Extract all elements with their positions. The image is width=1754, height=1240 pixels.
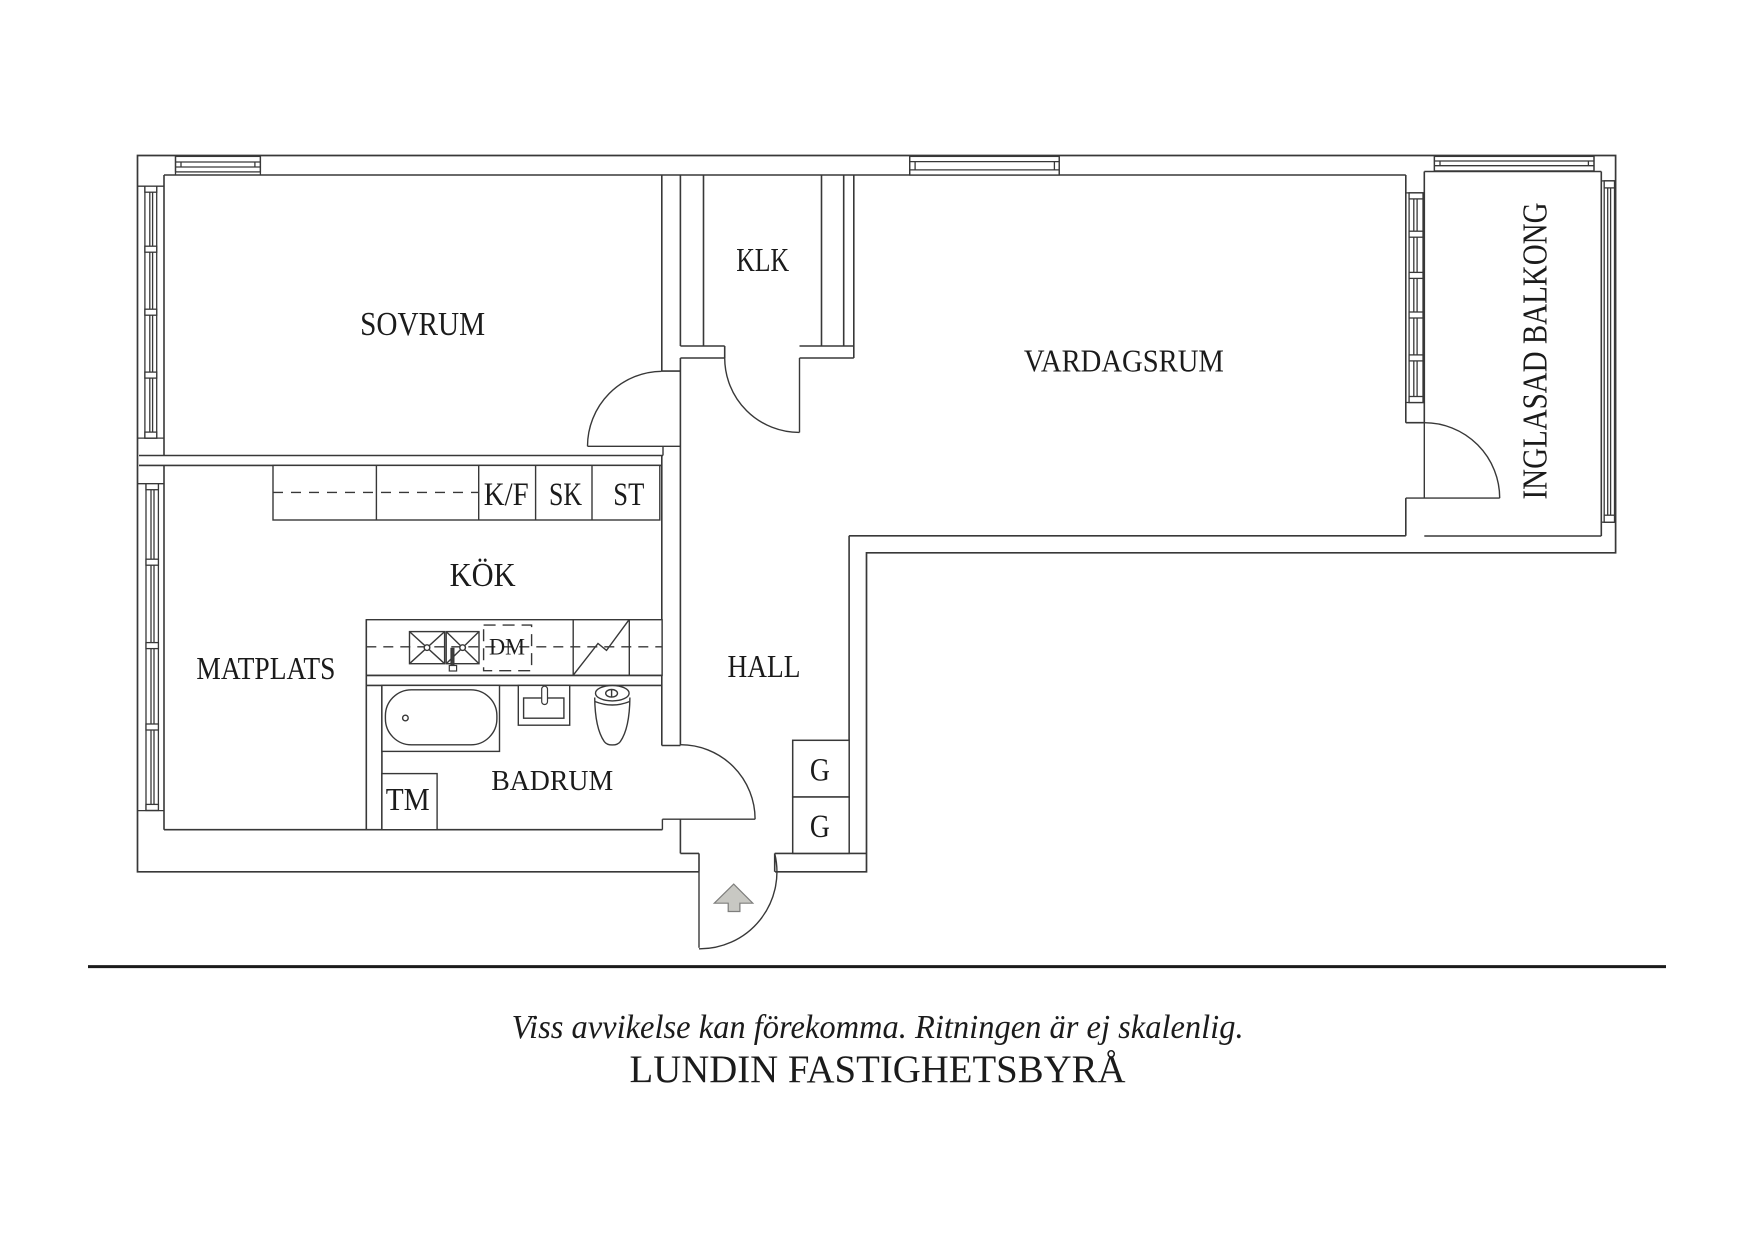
svg-text:KÖK: KÖK xyxy=(450,557,516,594)
svg-text:BADRUM: BADRUM xyxy=(491,765,613,797)
svg-text:MATPLATS: MATPLATS xyxy=(196,650,335,686)
svg-text:SOVRUM: SOVRUM xyxy=(360,306,485,343)
svg-text:KLK: KLK xyxy=(736,242,789,279)
svg-text:K/F: K/F xyxy=(484,477,529,513)
svg-text:INGLASAD BALKONG: INGLASAD BALKONG xyxy=(1516,203,1555,500)
svg-text:SK: SK xyxy=(549,477,582,513)
svg-text:ST: ST xyxy=(613,477,644,513)
svg-text:Viss avvikelse kan förekomma.: Viss avvikelse kan förekomma. Ritningen … xyxy=(512,1009,1244,1046)
svg-text:G: G xyxy=(810,809,830,845)
svg-text:TM: TM xyxy=(386,781,430,817)
svg-text:VARDAGSRUM: VARDAGSRUM xyxy=(1024,343,1224,379)
svg-text:LUNDIN FASTIGHETSBYRÅ: LUNDIN FASTIGHETSBYRÅ xyxy=(630,1048,1126,1091)
svg-text:G: G xyxy=(810,753,830,789)
svg-text:DM: DM xyxy=(489,635,525,660)
svg-text:HALL: HALL xyxy=(728,648,801,684)
